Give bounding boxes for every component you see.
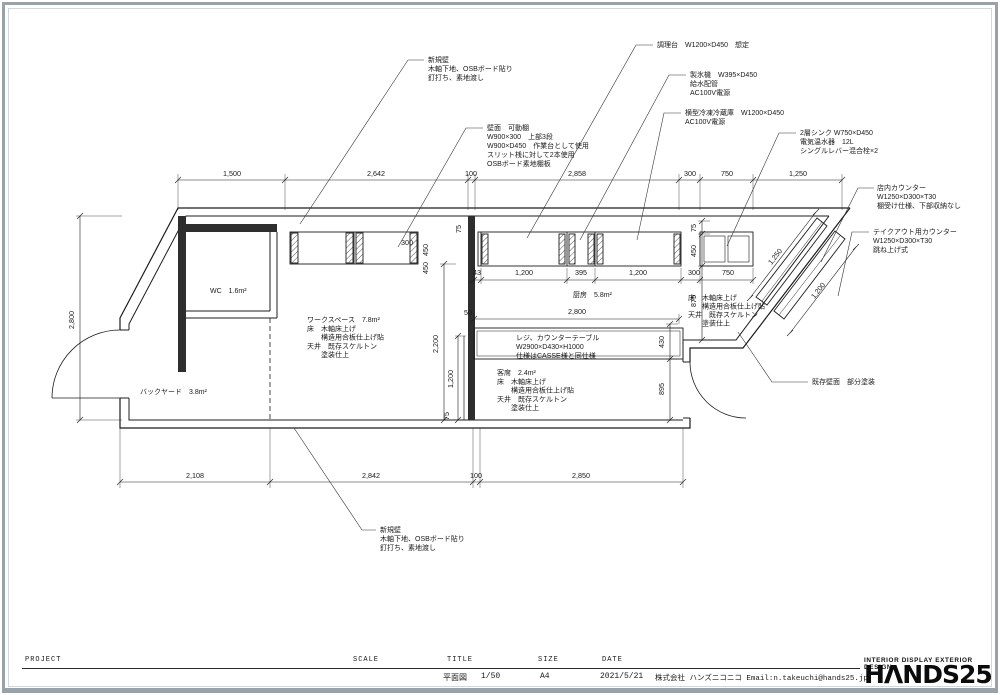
sink-bowl — [704, 236, 725, 262]
note-sink-leader — [727, 133, 796, 246]
door-jambs — [120, 330, 690, 418]
dim-tick — [747, 295, 753, 301]
dim-label: 1,200 — [515, 268, 533, 277]
dim-label: 2,842 — [362, 471, 380, 480]
sheet-bottom-bar — [2, 688, 998, 693]
scale-label: SCALE — [353, 656, 379, 664]
shelf-hatch — [346, 233, 353, 263]
room-seating: 客席 2.4m² — [497, 368, 537, 377]
spec-floor-right: 塗装仕上 — [688, 319, 730, 328]
dim-label: 2,200 — [431, 335, 440, 353]
note-new-wall-top: 新規壁 — [428, 55, 449, 64]
note-new-wall-bottom: 新規壁 — [380, 525, 401, 534]
dim-label: 100 — [470, 471, 482, 480]
dim-label: 450 — [689, 245, 698, 257]
room-workspace: 構造用合板仕上げ貼 — [307, 333, 384, 342]
room-workspace: 塗装仕上 — [307, 350, 349, 359]
dim-label: 2,858 — [568, 169, 586, 178]
backyard-partition-wall — [178, 216, 186, 372]
dim-label: 2,850 — [572, 471, 590, 480]
note-freezer-leader — [637, 113, 681, 240]
note-ice-maker: AC100V電源 — [690, 88, 730, 97]
note-wall-shelf: W900×300 上部3段 — [487, 132, 553, 141]
note-freezer: 横型冷凍冷蔵庫 W1200×D450 — [685, 108, 784, 117]
room-workspace: ワークスペース 7.8m² — [307, 316, 381, 324]
spec-floor-right: 天井 既存スケルトン — [688, 310, 758, 319]
dim-label: 750 — [722, 268, 734, 277]
project-label: PROJECT — [25, 656, 61, 664]
equipment-hatch — [674, 234, 680, 264]
dim-label: 875 — [689, 295, 698, 307]
note-new-wall-bottom: 釘打ち、素地渡し — [380, 543, 436, 552]
equipment-hatch — [559, 234, 565, 264]
shelf-hatch — [356, 233, 363, 263]
note-wall-shelf: W900×D450 作業台として使用 — [487, 141, 589, 150]
note-counter-store: 棚受け仕様、下部収納なし — [877, 201, 961, 210]
dim-label: 300 — [401, 238, 413, 247]
note-counter-takeout: W1250×D300×T30 — [873, 238, 932, 245]
dim-label: 75 — [454, 225, 463, 233]
note-counter-store: 店内カウンター — [877, 183, 926, 192]
room-register-counter: W2900×D430×H1000 — [516, 344, 584, 351]
title-block-line — [22, 668, 860, 669]
drawing-title: 平面図 — [443, 672, 467, 683]
dim-label: 50 — [464, 308, 472, 317]
room-register-counter: レジ、カウンターテーブル — [516, 333, 599, 342]
dim-label: 1,200 — [446, 370, 455, 388]
dimension-line — [750, 212, 816, 298]
wc-walls — [186, 232, 277, 318]
title-label: TITLE — [447, 656, 473, 664]
equipment-hatch — [597, 234, 603, 264]
sheet-size: A4 — [540, 672, 550, 681]
dim-label: 1,250 — [766, 247, 784, 267]
dim-label: 895 — [657, 383, 666, 395]
brand-logo: HΛNDS25 — [864, 662, 996, 688]
drawing-scale: 1/50 — [481, 672, 500, 681]
equipment-dividers — [481, 232, 595, 266]
note-new-wall-bottom: 木軸下地、OSBボード貼り — [380, 534, 465, 543]
note-wall-shelf: スリット桟に対して2本使用 — [487, 150, 575, 159]
dim-label: 2,642 — [367, 169, 385, 178]
note-sink: シングルレバー混合栓×2 — [800, 146, 878, 155]
left-door-arc — [52, 330, 120, 398]
note-freezer: AC100V電源 — [685, 117, 725, 126]
note-new-wall-top: 木軸下地、OSBボード貼り — [428, 64, 513, 73]
note-cooktop-leader — [527, 45, 653, 238]
generated-texts: 新規壁木軸下地、OSBボード貼り釘打ち、素地渡し壁面 可動棚W900×300 上… — [67, 40, 961, 552]
dim-label: 300 — [688, 268, 700, 277]
dim-label: 75 — [689, 224, 698, 232]
note-existing-wall-leader — [738, 332, 808, 382]
dim-label: 430 — [657, 336, 666, 348]
date-label: DATE — [602, 656, 623, 664]
equipment-hatch — [482, 234, 488, 264]
dim-label: 2,800 — [67, 311, 76, 329]
dim-tick — [813, 209, 819, 215]
dim-tick — [787, 330, 793, 336]
room-seating: 床 木軸床上げ — [497, 377, 546, 386]
sink-bowl — [728, 236, 749, 262]
dim-label: 300 — [684, 169, 696, 178]
dim-label: 1,200 — [809, 281, 827, 301]
room-kitchen: 厨房 5.8m² — [573, 290, 613, 299]
spec-floor-right: 構造用合板仕上げ貼 — [688, 302, 765, 311]
room-seating: 構造用合板仕上げ貼 — [497, 386, 574, 395]
note-counter-store: W1250×D300×T30 — [877, 194, 936, 201]
note-new-wall-top-leader — [300, 60, 424, 224]
room-seating: 塗装仕上 — [497, 403, 539, 412]
note-cooktop: 調理台 W1200×D450 想定 — [657, 40, 749, 49]
floor-plan-canvas: 新規壁木軸下地、OSBボード貼り釘打ち、素地渡し壁面 可動棚W900×300 上… — [0, 0, 1000, 652]
right-door-arc — [690, 362, 746, 418]
dim-label: 75 — [442, 412, 451, 420]
note-counter-store-leader — [821, 188, 874, 262]
note-existing-wall: 既存壁面 部分塗装 — [812, 377, 875, 386]
note-wall-shelf: 壁面 可動棚 — [487, 123, 529, 132]
size-label: SIZE — [538, 656, 559, 664]
equipment-hatch — [569, 234, 575, 264]
note-ice-maker-leader — [580, 75, 686, 240]
room-workspace: 床 木軸床上げ — [307, 324, 356, 333]
wc-beam-wall — [178, 224, 277, 232]
kitchen-equipment-row — [478, 232, 681, 266]
room-workspace: 天井 既存スケルトン — [307, 341, 377, 350]
shelf-hatch — [291, 233, 298, 263]
dim-label: 750 — [721, 169, 733, 178]
note-sink: 電気温水器 12L — [800, 137, 854, 146]
dim-label: 450 — [421, 262, 430, 274]
dim-label: 43 — [473, 268, 481, 277]
note-counter-takeout: テイクアウト用カウンター — [873, 227, 957, 236]
dim-label: 1,250 — [789, 169, 807, 178]
interior-walls — [178, 216, 690, 420]
room-seating: 天井 既存スケルトン — [497, 394, 567, 403]
dim-label: 2,800 — [568, 307, 586, 316]
note-counter-takeout: 跳ね上げ式 — [873, 245, 908, 254]
dim-label: 1,200 — [629, 268, 647, 277]
dim-label: 100 — [465, 169, 477, 178]
room-backyard: バックヤード 3.8m² — [140, 388, 208, 396]
company-info: 株式会社 ハンズニコニコ Email:n.takeuchi@hands25.jp — [655, 672, 868, 683]
doors — [52, 330, 746, 418]
lower-right-wall — [683, 348, 690, 362]
dim-label: 1,500 — [223, 169, 241, 178]
note-sink: 2層シンク W750×D450 — [800, 129, 873, 137]
note-ice-maker: 給水配管 — [690, 79, 718, 88]
dim-label: 395 — [575, 268, 587, 277]
note-ice-maker: 製氷機 W395×D450 — [690, 70, 757, 79]
note-new-wall-top: 釘打ち、素地渡し — [428, 73, 484, 82]
sink-unit — [700, 232, 753, 266]
sheet-date: 2021/5/21 — [600, 672, 643, 681]
dim-tick — [853, 244, 859, 250]
drawing-sheet: 新規壁木軸下地、OSBボード貼り釘打ち、素地渡し壁面 可動棚W900×300 上… — [0, 0, 1000, 695]
dim-label: 2,108 — [186, 471, 204, 480]
room-wc: WC 1.6m² — [210, 288, 247, 295]
room-register-counter: 仕様はCASSE様と同仕様 — [516, 351, 596, 360]
equipment-hatch — [588, 234, 594, 264]
dim-label: 450 — [421, 244, 430, 256]
note-wall-shelf: OSBボード素地棚板 — [487, 159, 551, 168]
